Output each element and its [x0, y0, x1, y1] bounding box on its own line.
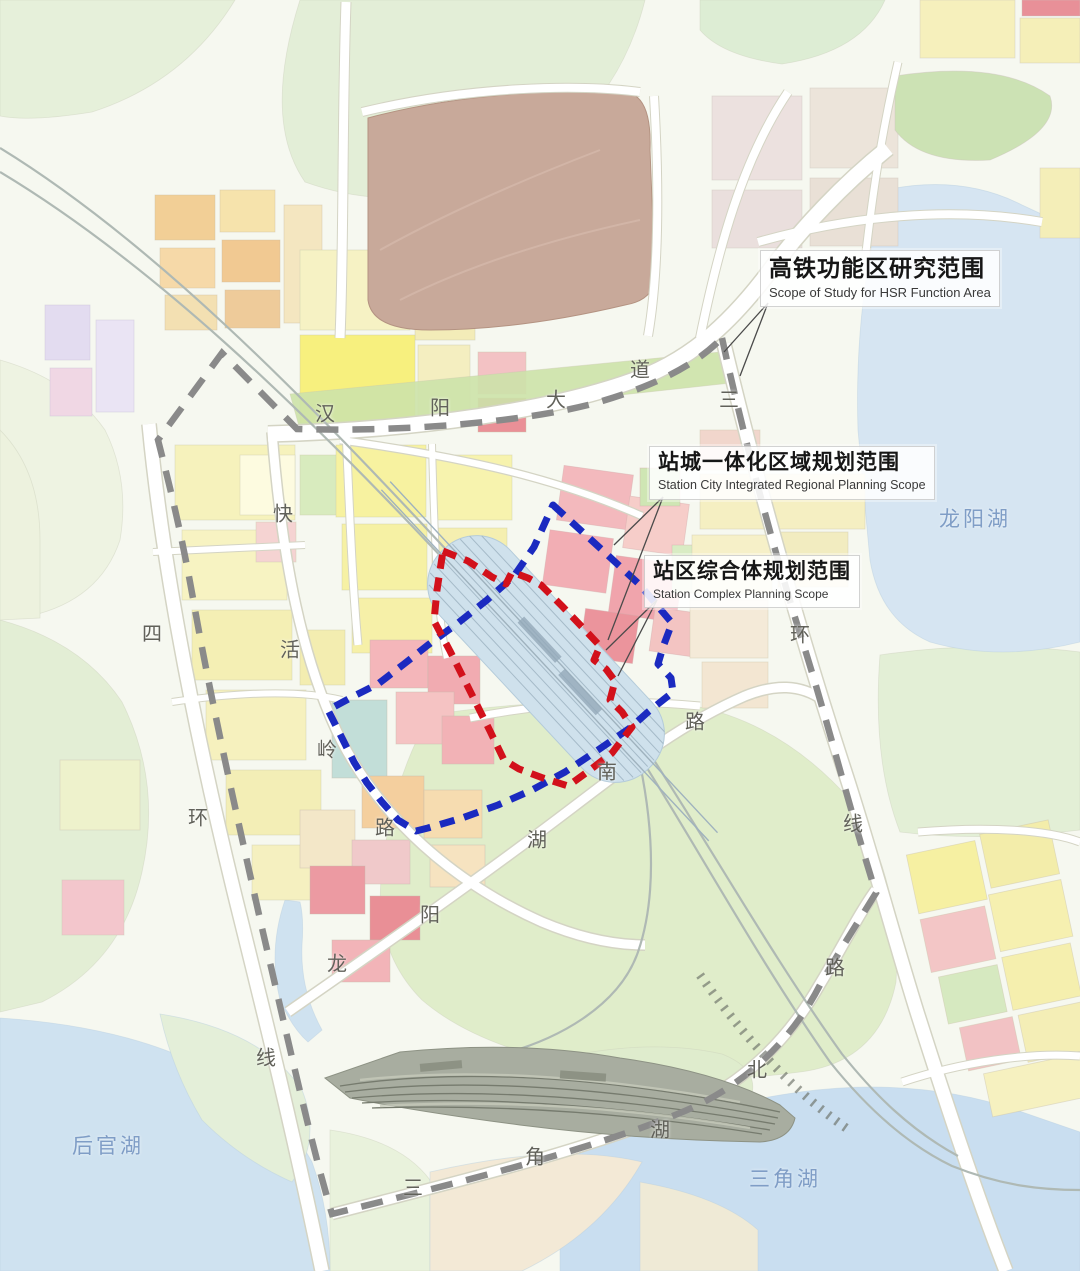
- callout-title-en: Station City Integrated Regional Plannin…: [658, 478, 926, 494]
- callout-title-zh: 高铁功能区研究范围: [769, 254, 991, 283]
- road-label-char: 阳: [430, 392, 450, 421]
- road-label-char: 阳: [420, 899, 440, 928]
- road-label-char: 路: [825, 952, 845, 981]
- road-label-char: 大: [546, 384, 566, 413]
- road-label-char: 快: [273, 498, 293, 527]
- callout-title-en: Station Complex Planning Scope: [653, 587, 851, 602]
- road-label-char: 角: [525, 1141, 545, 1170]
- road-label-char: 岭: [317, 734, 337, 763]
- road-label-char: 线: [843, 808, 863, 837]
- road-label-char: 路: [685, 706, 705, 735]
- callout-station-city-scope: 站城一体化区域规划范围 Station City Integrated Regi…: [649, 446, 935, 500]
- road-label-char: 四: [142, 618, 162, 647]
- callout-station-complex-scope: 站区综合体规划范围 Station Complex Planning Scope: [644, 555, 860, 608]
- road-label-char: 活: [280, 634, 300, 663]
- callout-hsr-study-area: 高铁功能区研究范围 Scope of Study for HSR Functio…: [760, 250, 1000, 307]
- map-artwork: [0, 0, 1080, 1271]
- callout-title-zh: 站区综合体规划范围: [653, 559, 851, 585]
- lake-label: 三角湖: [749, 1163, 821, 1193]
- road-label-char: 湖: [650, 1114, 670, 1143]
- lake-label: 后官湖: [72, 1130, 144, 1160]
- road-label-char: 环: [188, 802, 208, 831]
- lake-label: 龙阳湖: [939, 503, 1011, 533]
- road-label-char: 龙: [327, 948, 347, 977]
- road-label-char: 汉: [315, 398, 335, 427]
- road-label-char: 南: [597, 756, 617, 785]
- road-label-char: 北: [747, 1054, 767, 1083]
- road-label-char: 线: [256, 1042, 276, 1071]
- road-label-char: 三: [403, 1172, 423, 1201]
- road-label-char: 环: [790, 619, 810, 648]
- road-label-char: 道: [630, 354, 650, 383]
- planning-map: 高铁功能区研究范围 Scope of Study for HSR Functio…: [0, 0, 1080, 1271]
- road-label-char: 三: [719, 384, 739, 413]
- callout-title-zh: 站城一体化区域规划范围: [658, 450, 926, 476]
- road-label-char: 湖: [527, 824, 547, 853]
- road-label-char: 路: [375, 812, 395, 841]
- callout-title-en: Scope of Study for HSR Function Area: [769, 285, 991, 301]
